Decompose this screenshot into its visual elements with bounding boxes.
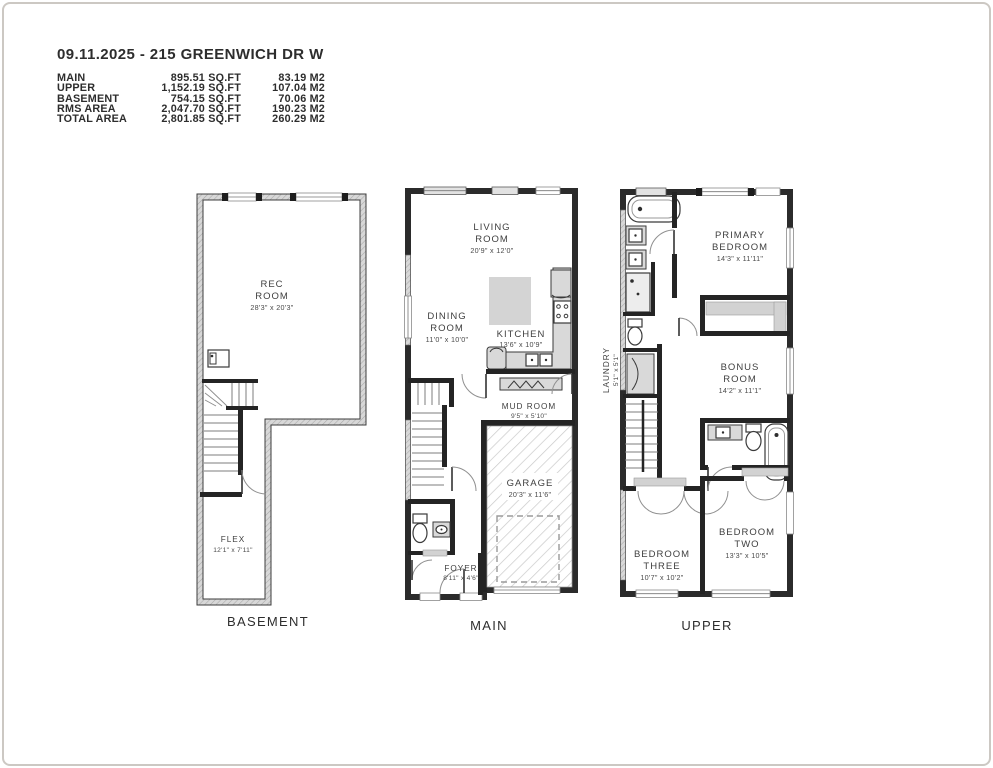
room-dims-rec: 28'3" x 20'3" <box>250 303 293 312</box>
room-dims-dining: 11'0" x 10'0" <box>426 335 469 344</box>
kitchen-fixtures <box>487 268 571 369</box>
room-label-dining: DINING <box>427 311 466 322</box>
room-label-bed2-2: TWO <box>734 539 759 550</box>
room-dims-garage: 20'3" x 11'6" <box>509 490 552 499</box>
room-label-rec-2: ROOM <box>255 291 289 302</box>
room-label-laundry: LAUNDRY <box>602 347 611 393</box>
room-dims-living: 20'9" x 12'0" <box>470 246 513 255</box>
room-label-primary-2: BEDROOM <box>712 242 768 253</box>
fridge-icon <box>551 270 571 297</box>
toilet-icon <box>413 514 427 523</box>
room-label-bed3-2: THREE <box>643 561 680 572</box>
kitchen-island <box>489 277 531 325</box>
floor-plans-drawing: REC ROOM 28'3" x 20'3" FLEX 12'1" x 7'11… <box>0 0 993 768</box>
washer-icon <box>627 354 654 394</box>
shower-icon <box>626 273 650 312</box>
room-label-foyer: FOYER <box>444 564 477 573</box>
basement-plan: REC ROOM 28'3" x 20'3" FLEX 12'1" x 7'11… <box>200 193 363 629</box>
room-label-primary: PRIMARY <box>715 230 765 241</box>
room-dims-primary: 14'3" x 11'11" <box>717 254 764 263</box>
room-dims-bonus: 14'2" x 11'1" <box>719 386 762 395</box>
stove-icon <box>554 301 571 323</box>
room-label-bonus: BONUS <box>721 362 760 373</box>
room-label-rec: REC <box>260 279 283 290</box>
main-plan: LIVING ROOM 20'9" x 12'0" DINING ROOM 11… <box>405 187 576 633</box>
room-dims-mud: 9'5" x 5'10" <box>511 413 547 420</box>
room-dims-laundry: 5'1" x 5'1" <box>613 354 620 386</box>
room-dims-bed2: 13'3" x 10'5" <box>725 551 768 560</box>
room-label-kitchen: KITCHEN <box>497 329 546 340</box>
room-dims-kitchen: 13'6" x 10'9" <box>499 340 542 349</box>
floor-label-upper: UPPER <box>681 618 732 633</box>
room-label-bonus-2: ROOM <box>723 374 757 385</box>
floor-label-main: MAIN <box>470 618 508 633</box>
garage <box>481 420 575 594</box>
floor-plan-sheet: 09.11.2025 - 215 GREENWICH DR W MAIN 895… <box>0 0 993 768</box>
room-label-dining-2: ROOM <box>430 323 464 334</box>
room-dims-flex: 12'1" x 7'11" <box>213 547 253 554</box>
room-label-mud: MUD ROOM <box>502 402 556 411</box>
room-label-living: LIVING <box>473 222 510 233</box>
furnace-icon <box>208 350 229 367</box>
room-label-living-2: ROOM <box>475 234 509 245</box>
room-label-garage: GARAGE <box>507 478 554 489</box>
room-label-bed3: BEDROOM <box>634 549 690 560</box>
upper-plan: PRIMARY BEDROOM 14'3" x 11'11" LAUNDRY 5… <box>602 188 794 633</box>
room-dims-foyer: 8'11" x 4'6" <box>443 575 479 582</box>
kitchen-corner-sink <box>487 347 506 369</box>
toilet-icon <box>746 424 761 432</box>
room-label-bed2: BEDROOM <box>719 527 775 538</box>
room-label-flex: FLEX <box>221 535 245 544</box>
room-dims-bed3: 10'7" x 10'2" <box>640 573 683 582</box>
floor-label-basement: BASEMENT <box>227 614 309 629</box>
toilet-icon <box>628 319 642 327</box>
